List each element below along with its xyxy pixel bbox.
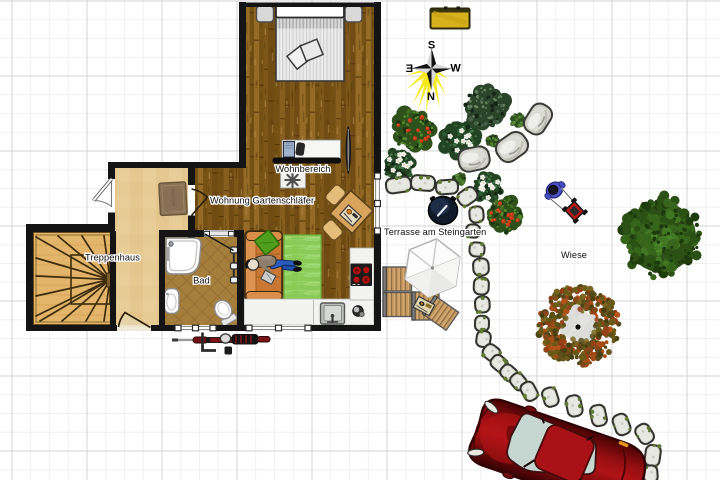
svg-text:Terrasse am Steingarten: Terrasse am Steingarten	[384, 227, 486, 237]
svg-text:Treppenhaus: Treppenhaus	[85, 253, 140, 263]
svg-text:E: E	[406, 63, 413, 75]
svg-text:Bad: Bad	[193, 276, 210, 286]
svg-text:Wiese: Wiese	[561, 250, 587, 260]
svg-text:S: S	[428, 40, 435, 52]
svg-text:welcome: welcome	[170, 188, 176, 206]
svg-text:Wohnung Gartenschläfer: Wohnung Gartenschläfer	[210, 196, 314, 206]
svg-text:W: W	[450, 63, 461, 75]
svg-text:Wohnbereich: Wohnbereich	[275, 164, 330, 174]
svg-text:N: N	[427, 91, 435, 103]
